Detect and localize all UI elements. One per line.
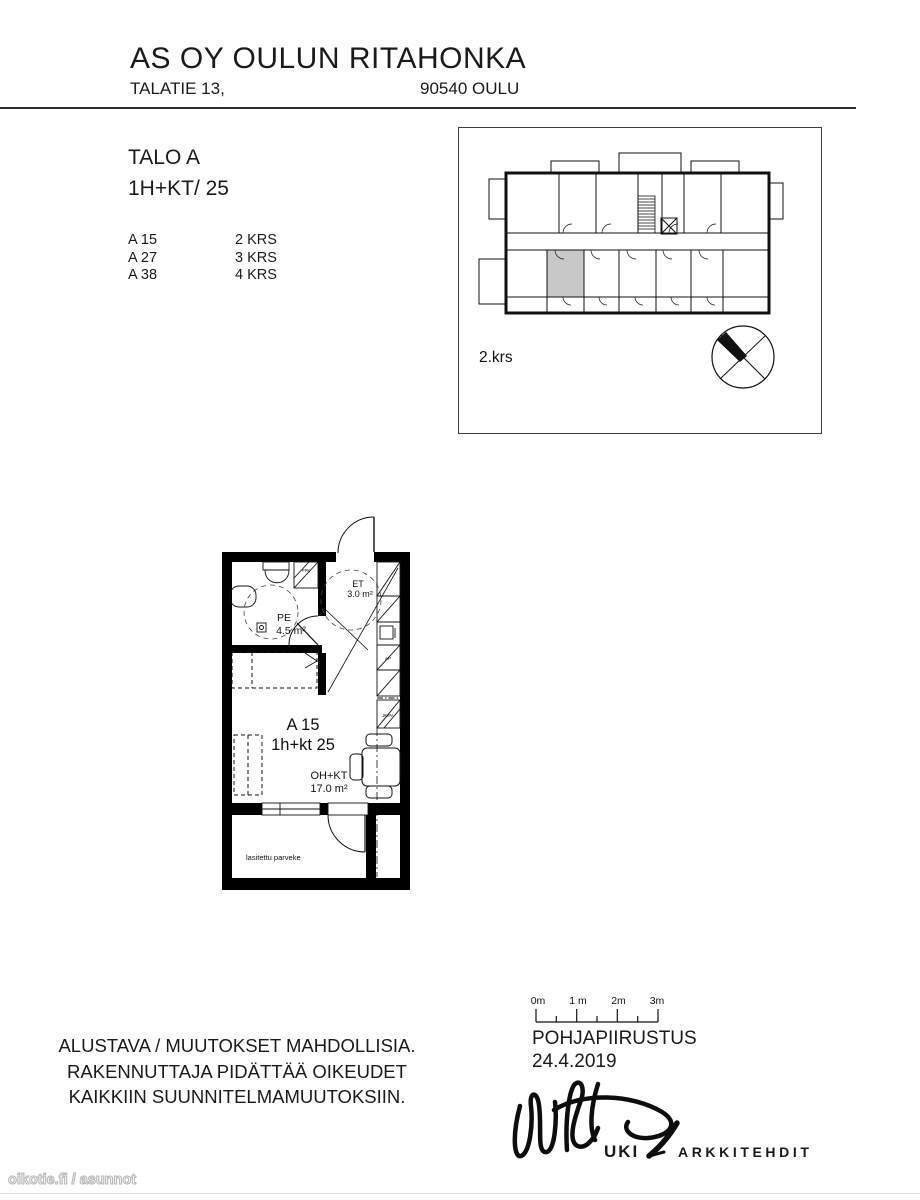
duvet-corner	[305, 653, 317, 668]
postal-address: 90540 OULU	[420, 79, 519, 99]
unit-id: A 15	[128, 232, 157, 248]
washing-machine-icon	[294, 562, 318, 588]
ppk-label: PPK	[302, 568, 311, 573]
unit-floor: 2 KRS	[235, 232, 277, 248]
disclaimer-line: KAIKKIIN SUUNNITELMAMUUTOKSIIN.	[42, 1084, 432, 1110]
dining-set-icon	[350, 734, 400, 798]
windows	[262, 803, 368, 815]
unit-row: A 15 2 KRS	[128, 232, 328, 250]
header-divider	[0, 107, 856, 109]
room-ohkt-area: 17.0 m²	[310, 783, 348, 795]
unit-floor: 4 KRS	[235, 267, 277, 283]
scale-label-2m: 2m	[611, 995, 626, 1007]
room-pe-area: 4.5 m²	[276, 625, 306, 637]
scale-bar: 0m 1 m 2m 3m	[531, 992, 666, 1026]
room-et-code: ET	[352, 579, 364, 589]
disclaimer-line: RAKENNUTTAJA PIDÄTTÄÄ OIKEUDET	[42, 1059, 432, 1085]
stairs-icon	[638, 196, 655, 233]
site-watermark: oikotie.fi / asunnot	[8, 1172, 136, 1188]
floor-overview-panel: 2.krs	[458, 127, 822, 434]
scale-label-0m: 0m	[531, 995, 546, 1007]
architect-logo-swoosh-icon	[644, 1120, 682, 1162]
drawing-date: 24.4.2019	[532, 1051, 617, 1073]
bed-outline	[232, 652, 317, 688]
room-ohkt-code: OH+KT	[311, 770, 348, 782]
unit-floor: 3 KRS	[235, 250, 277, 266]
highlighted-unit	[547, 250, 584, 297]
sink-icon	[230, 586, 256, 607]
unit-id: A 27	[128, 250, 157, 266]
drawing-type-label: POHJAPIIRUSTUS	[532, 1028, 697, 1050]
unit-row: A 27 3 KRS	[128, 250, 328, 268]
scale-label-3m: 3m	[650, 995, 665, 1007]
building-outline	[479, 153, 783, 313]
floorplan-document-page: AS OY OULUN RITAHONKA TALATIE 13, 90540 …	[0, 0, 920, 1200]
unit-id-label: A 15	[286, 716, 319, 734]
building-label: TALO A	[128, 146, 200, 170]
architect-brand: UKI	[604, 1142, 639, 1162]
disclaimer-text: ALUSTAVA / MUUTOKSET MAHDOLLISIA. RAKENN…	[42, 1033, 432, 1110]
room-et-area: 3.0 m²	[347, 589, 373, 599]
floor-drain-icon	[257, 623, 266, 632]
architect-brand-suffix: ARKKITEHDIT	[678, 1144, 812, 1160]
jkpa-label: JK/PA	[382, 713, 394, 718]
room-pe-code: PE	[277, 612, 291, 624]
balcony-label: lasitettu parveke	[246, 853, 301, 862]
kitchen-sink-icon	[377, 622, 400, 645]
kitchen-cabinets	[377, 562, 400, 728]
disclaimer-line: ALUSTAVA / MUUTOKSET MAHDOLLISIA.	[42, 1033, 432, 1059]
apartment-floorplan-drawing: PE 4.5 m² ET 3.0 m² A 15 1h+kt 25 OH+KT …	[215, 500, 415, 895]
unit-floor-list: A 15 2 KRS A 27 3 KRS A 38 4 KRS	[128, 232, 328, 285]
unit-row: A 38 4 KRS	[128, 267, 328, 285]
document-title: AS OY OULUN RITAHONKA	[130, 42, 526, 76]
overview-floor-label: 2.krs	[479, 349, 513, 366]
apartment-type-label: 1H+KT/ 25	[128, 177, 229, 201]
unit-type-label: 1h+kt 25	[271, 736, 335, 754]
scale-label-1m: 1 m	[569, 995, 587, 1007]
street-address: TALATIE 13,	[130, 79, 225, 99]
ap-label: AP	[385, 656, 391, 661]
floor-overview-drawing: 2.krs	[459, 128, 821, 433]
compass-icon	[712, 326, 774, 388]
toilet-icon	[263, 562, 289, 570]
page-bottom-divider	[0, 1193, 920, 1194]
unit-id: A 38	[128, 267, 157, 283]
